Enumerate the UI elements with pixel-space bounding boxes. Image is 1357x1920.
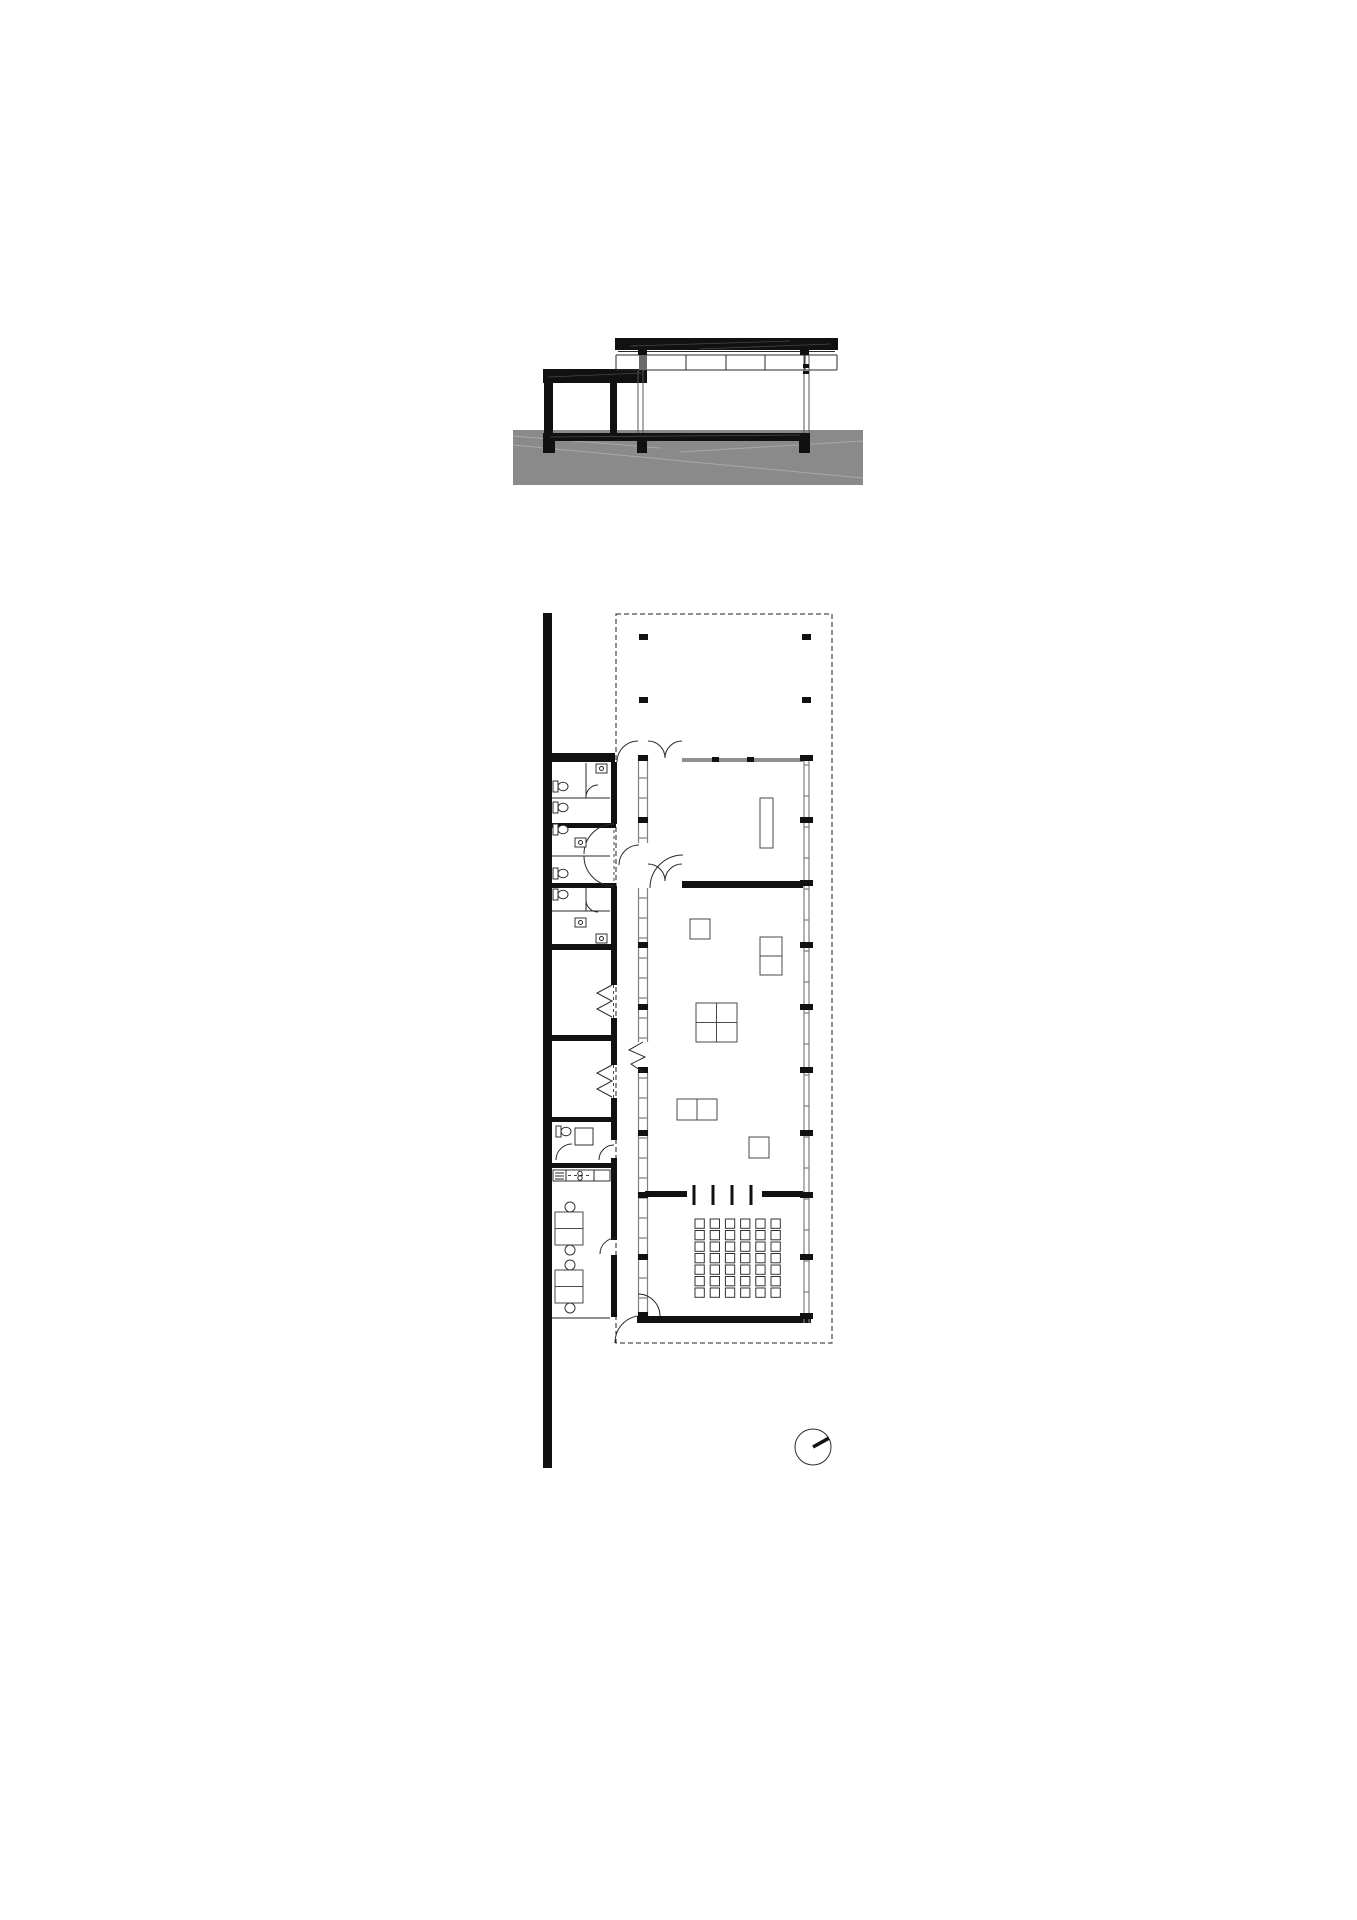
chair [756,1288,765,1297]
wc-bowl [561,1127,571,1135]
chair [695,1254,704,1263]
spine-wall [543,613,552,1468]
sink [575,838,586,847]
chair [725,1254,734,1263]
canopy-roof-slab [543,369,647,383]
west-column-marker [638,942,648,948]
room-divider-wall [552,944,616,950]
wc-tank [556,1126,561,1137]
east-column-marker [800,942,813,948]
chair [695,1277,704,1286]
chair [756,1254,765,1263]
chair [756,1242,765,1251]
service-east-wall-seg [611,886,617,985]
sink [575,918,586,927]
chair [695,1265,704,1274]
service-east-wall-seg [611,1158,617,1240]
chair [741,1242,750,1251]
chair-circle [565,1202,575,1212]
west-column-marker [638,817,648,823]
chair [725,1288,734,1297]
chair [725,1219,734,1228]
chair-circle [565,1245,575,1255]
canopy-column [610,383,617,433]
terrace-column [639,697,648,703]
wc-bowl [558,890,568,898]
shower-fixture [575,1128,593,1145]
chair [771,1288,780,1297]
chair [741,1288,750,1297]
drawing-sheet [0,0,1357,1920]
east-column-marker [800,1130,813,1136]
chair [695,1242,704,1251]
wall-tick [747,757,754,762]
chair-circle [565,1303,575,1313]
service-east-wall-seg [611,1255,617,1317]
wc-bowl [558,803,568,811]
chair [725,1265,734,1274]
chair [771,1254,780,1263]
room-divider-wall [552,1117,616,1122]
sink [596,764,607,773]
room-divider-wall [552,1035,616,1041]
chair [710,1219,719,1228]
east-column-marker [800,1192,813,1198]
room-divider-wall [552,1163,616,1168]
wc-bowl [558,869,568,877]
chair [710,1277,719,1286]
pivot-door-leaf [712,1185,715,1205]
chair [741,1219,750,1228]
east-column-marker [800,1004,813,1010]
service-top-wall [552,753,615,762]
east-column-marker [800,817,813,823]
east-column-marker [800,1254,813,1260]
east-column-marker [800,1067,813,1073]
chair [725,1277,734,1286]
west-column-marker [638,1254,648,1260]
chair [756,1231,765,1240]
west-column-marker [638,1004,648,1010]
table [690,919,710,939]
wc-tank [553,824,558,835]
sink [596,934,607,943]
chair [710,1265,719,1274]
chair [771,1231,780,1240]
chair [741,1254,750,1263]
east-column-marker [800,1313,813,1319]
foundation-stub [637,441,647,453]
chair [710,1242,719,1251]
east-column-marker [800,880,813,886]
chair [771,1277,780,1286]
wc-tank [553,889,558,900]
west-column-marker [638,1130,648,1136]
column-detail [803,371,809,374]
pivot-door-leaf [693,1185,696,1205]
chair [771,1265,780,1274]
sheet-background [0,0,1357,1920]
chair [695,1231,704,1240]
auditorium-wall-left [645,1191,687,1197]
table [760,798,773,848]
wc-tank [553,781,558,792]
west-column-marker [638,755,648,761]
chair [725,1231,734,1240]
chair [695,1219,704,1228]
chair [756,1277,765,1286]
kitchenette [553,1170,610,1181]
terrace-column [802,697,811,703]
pivot-door-leaf [750,1185,753,1205]
chair [741,1265,750,1274]
terrace-column [802,634,811,640]
column-capital [638,350,647,355]
chair [710,1254,719,1263]
service-east-wall-seg [611,762,617,824]
chair [741,1231,750,1240]
wall-tick [712,757,719,762]
auditorium-wall-right [762,1191,803,1197]
wc-bowl [558,782,568,790]
column-capital [800,350,809,355]
chair [710,1288,719,1297]
chair [756,1219,765,1228]
chair [695,1288,704,1297]
east-column-marker [800,755,813,761]
wc-tank [553,802,558,813]
foundation-stub [799,441,810,453]
hall-divider-wall [682,881,803,888]
wc-tank [553,868,558,879]
chair [771,1242,780,1251]
wc-bowl [558,825,568,833]
chair [725,1242,734,1251]
pivot-door-leaf [731,1185,734,1205]
foundation-stub [543,441,555,453]
column-detail [803,364,809,368]
table [749,1137,769,1158]
service-east-wall-seg [611,1018,617,1065]
chair [756,1265,765,1274]
canopy-column [544,383,553,433]
chair [710,1231,719,1240]
hall-south-wall [637,1316,811,1323]
chair-circle [565,1260,575,1270]
chair [741,1277,750,1286]
chair [771,1219,780,1228]
terrace-column [639,634,648,640]
